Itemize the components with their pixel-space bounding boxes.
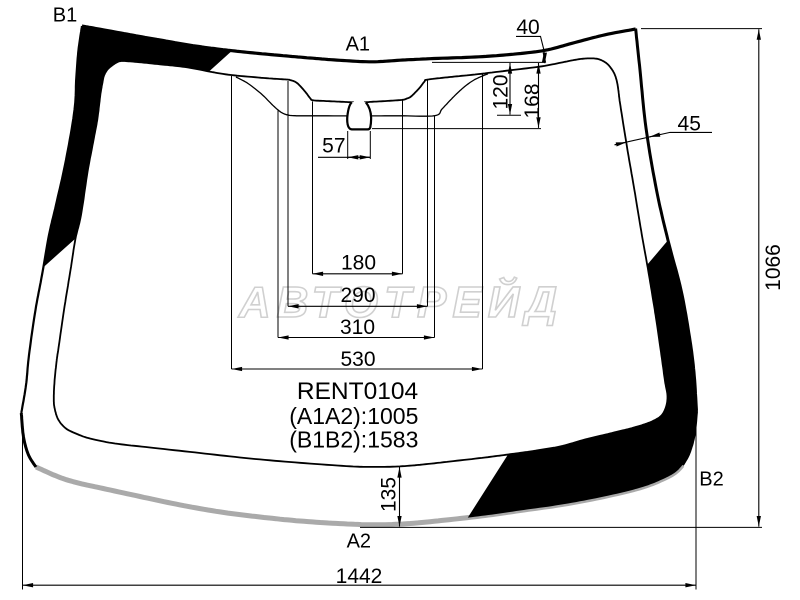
- svg-text:B2: B2: [699, 469, 723, 491]
- svg-text:RENT0104: RENT0104: [297, 378, 418, 405]
- svg-text:(A1A2):1005: (A1A2):1005: [289, 403, 418, 429]
- svg-text:168: 168: [521, 83, 544, 118]
- svg-text:57: 57: [322, 135, 345, 158]
- svg-text:120: 120: [490, 74, 513, 109]
- svg-text:40: 40: [516, 16, 539, 39]
- svg-text:530: 530: [340, 348, 375, 371]
- svg-text:310: 310: [340, 316, 375, 339]
- svg-text:B1: B1: [53, 5, 77, 27]
- svg-text:A2: A2: [347, 530, 371, 552]
- svg-text:1442: 1442: [336, 565, 383, 588]
- svg-text:135: 135: [377, 477, 400, 512]
- svg-text:A1: A1: [346, 34, 370, 56]
- svg-text:АВТОТРЕЙД: АВТОТРЕЙД: [238, 276, 563, 327]
- svg-text:1066: 1066: [762, 244, 785, 291]
- svg-text:180: 180: [341, 251, 376, 274]
- svg-text:45: 45: [678, 112, 701, 135]
- svg-text:(B1B2):1583: (B1B2):1583: [289, 427, 418, 453]
- svg-text:290: 290: [340, 284, 375, 307]
